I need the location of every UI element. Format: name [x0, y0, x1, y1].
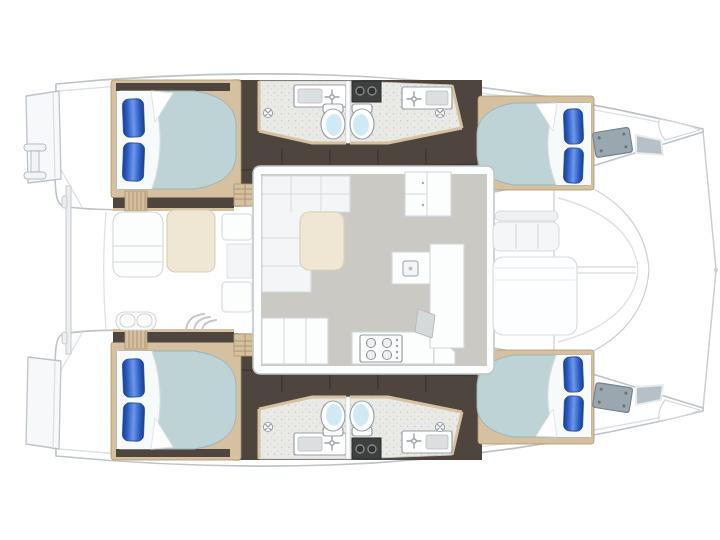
pillow-icon [563, 109, 583, 145]
head-compartment-aft [259, 81, 346, 143]
cockpit-bench [113, 212, 163, 277]
cockpit-seat [116, 312, 156, 330]
chart-seat [262, 318, 328, 364]
forward-cockpit-bench [493, 222, 559, 251]
double-bed [117, 91, 236, 189]
pillow-icon [563, 148, 583, 184]
aft-cabin [111, 80, 241, 211]
toilet-icon [350, 104, 374, 139]
stove-icon [360, 335, 402, 362]
shower-drain-icon [264, 109, 273, 118]
saloon [253, 166, 494, 374]
catamaran-deck-plan [0, 0, 720, 540]
cockpit-table [167, 210, 215, 272]
headboard-shelf [116, 83, 230, 91]
nav-cabinet [405, 172, 451, 216]
pillow-icon [122, 143, 144, 182]
utility-hatch [352, 81, 381, 102]
forward-lounge [493, 257, 577, 335]
dining-table [300, 212, 344, 270]
bow-hatch-icon [592, 127, 632, 157]
pillow-icon [122, 99, 144, 138]
cabin-steps [125, 191, 147, 211]
head-divider-wall [346, 81, 350, 143]
shower-drain-icon [436, 109, 445, 118]
sink-icon [402, 87, 452, 109]
bench-backrest [495, 211, 558, 221]
toilet-icon [321, 104, 345, 139]
galley-sink-icon [403, 261, 418, 276]
cockpit-side-unit [222, 214, 252, 312]
